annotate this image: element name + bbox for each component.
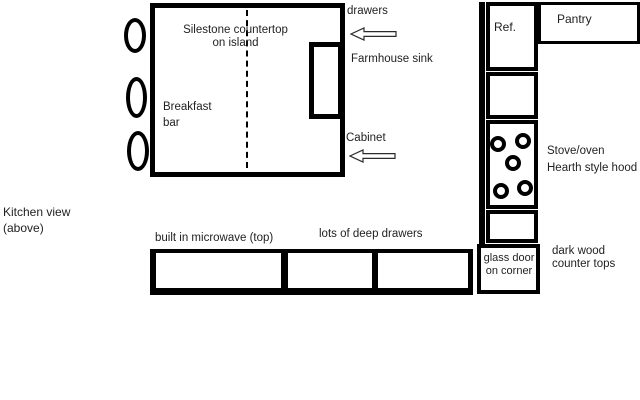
pantry-label: Pantry <box>557 12 592 26</box>
burner-icon <box>505 155 521 171</box>
microwave-label: built in microwave (top) <box>155 231 273 245</box>
bar-stool-icon <box>124 18 146 53</box>
burner-icon <box>517 180 533 196</box>
burner-icon <box>515 133 531 149</box>
island-label-line2: on island <box>212 37 258 49</box>
island-label: Silestone countertopon island <box>168 24 303 50</box>
island-label-line1: Silestone countertop <box>183 24 288 36</box>
burner-icon <box>493 183 509 199</box>
burner-icon <box>490 136 506 152</box>
stove-label: Stove/ovenHearth style hood <box>547 143 637 177</box>
drawers-label: drawers <box>347 4 388 18</box>
left-arrow-icon <box>349 149 396 163</box>
cabinet-label: Cabinet <box>346 131 386 145</box>
kitchen-floor-plan: Silestone countertopon island Breakfastb… <box>0 0 640 400</box>
bar-stool-icon <box>127 131 149 171</box>
dark-wood-label: dark woodcounter tops <box>552 245 615 271</box>
view-caption: Kitchen view(above) <box>3 204 70 236</box>
farmhouse-sink-outline <box>309 42 343 119</box>
upper-cabinet-outline <box>486 72 538 119</box>
lower-cabinet-outline <box>486 210 538 243</box>
counter-divider-line <box>281 253 288 288</box>
left-arrow-icon <box>350 27 397 41</box>
bar-stool-icon <box>126 77 147 118</box>
refrigerator-outline <box>486 2 538 71</box>
base-counter-outline <box>150 249 473 295</box>
glass-door-label: glass dooron corner <box>481 252 537 278</box>
breakfast-bar-label: Breakfastbar <box>163 99 212 131</box>
right-wall-line <box>479 2 485 246</box>
farmhouse-sink-label: Farmhouse sink <box>351 52 433 66</box>
counter-divider-line <box>372 253 378 288</box>
deep-drawers-label: lots of deep drawers <box>319 227 423 241</box>
refrigerator-label: Ref. <box>494 20 516 34</box>
